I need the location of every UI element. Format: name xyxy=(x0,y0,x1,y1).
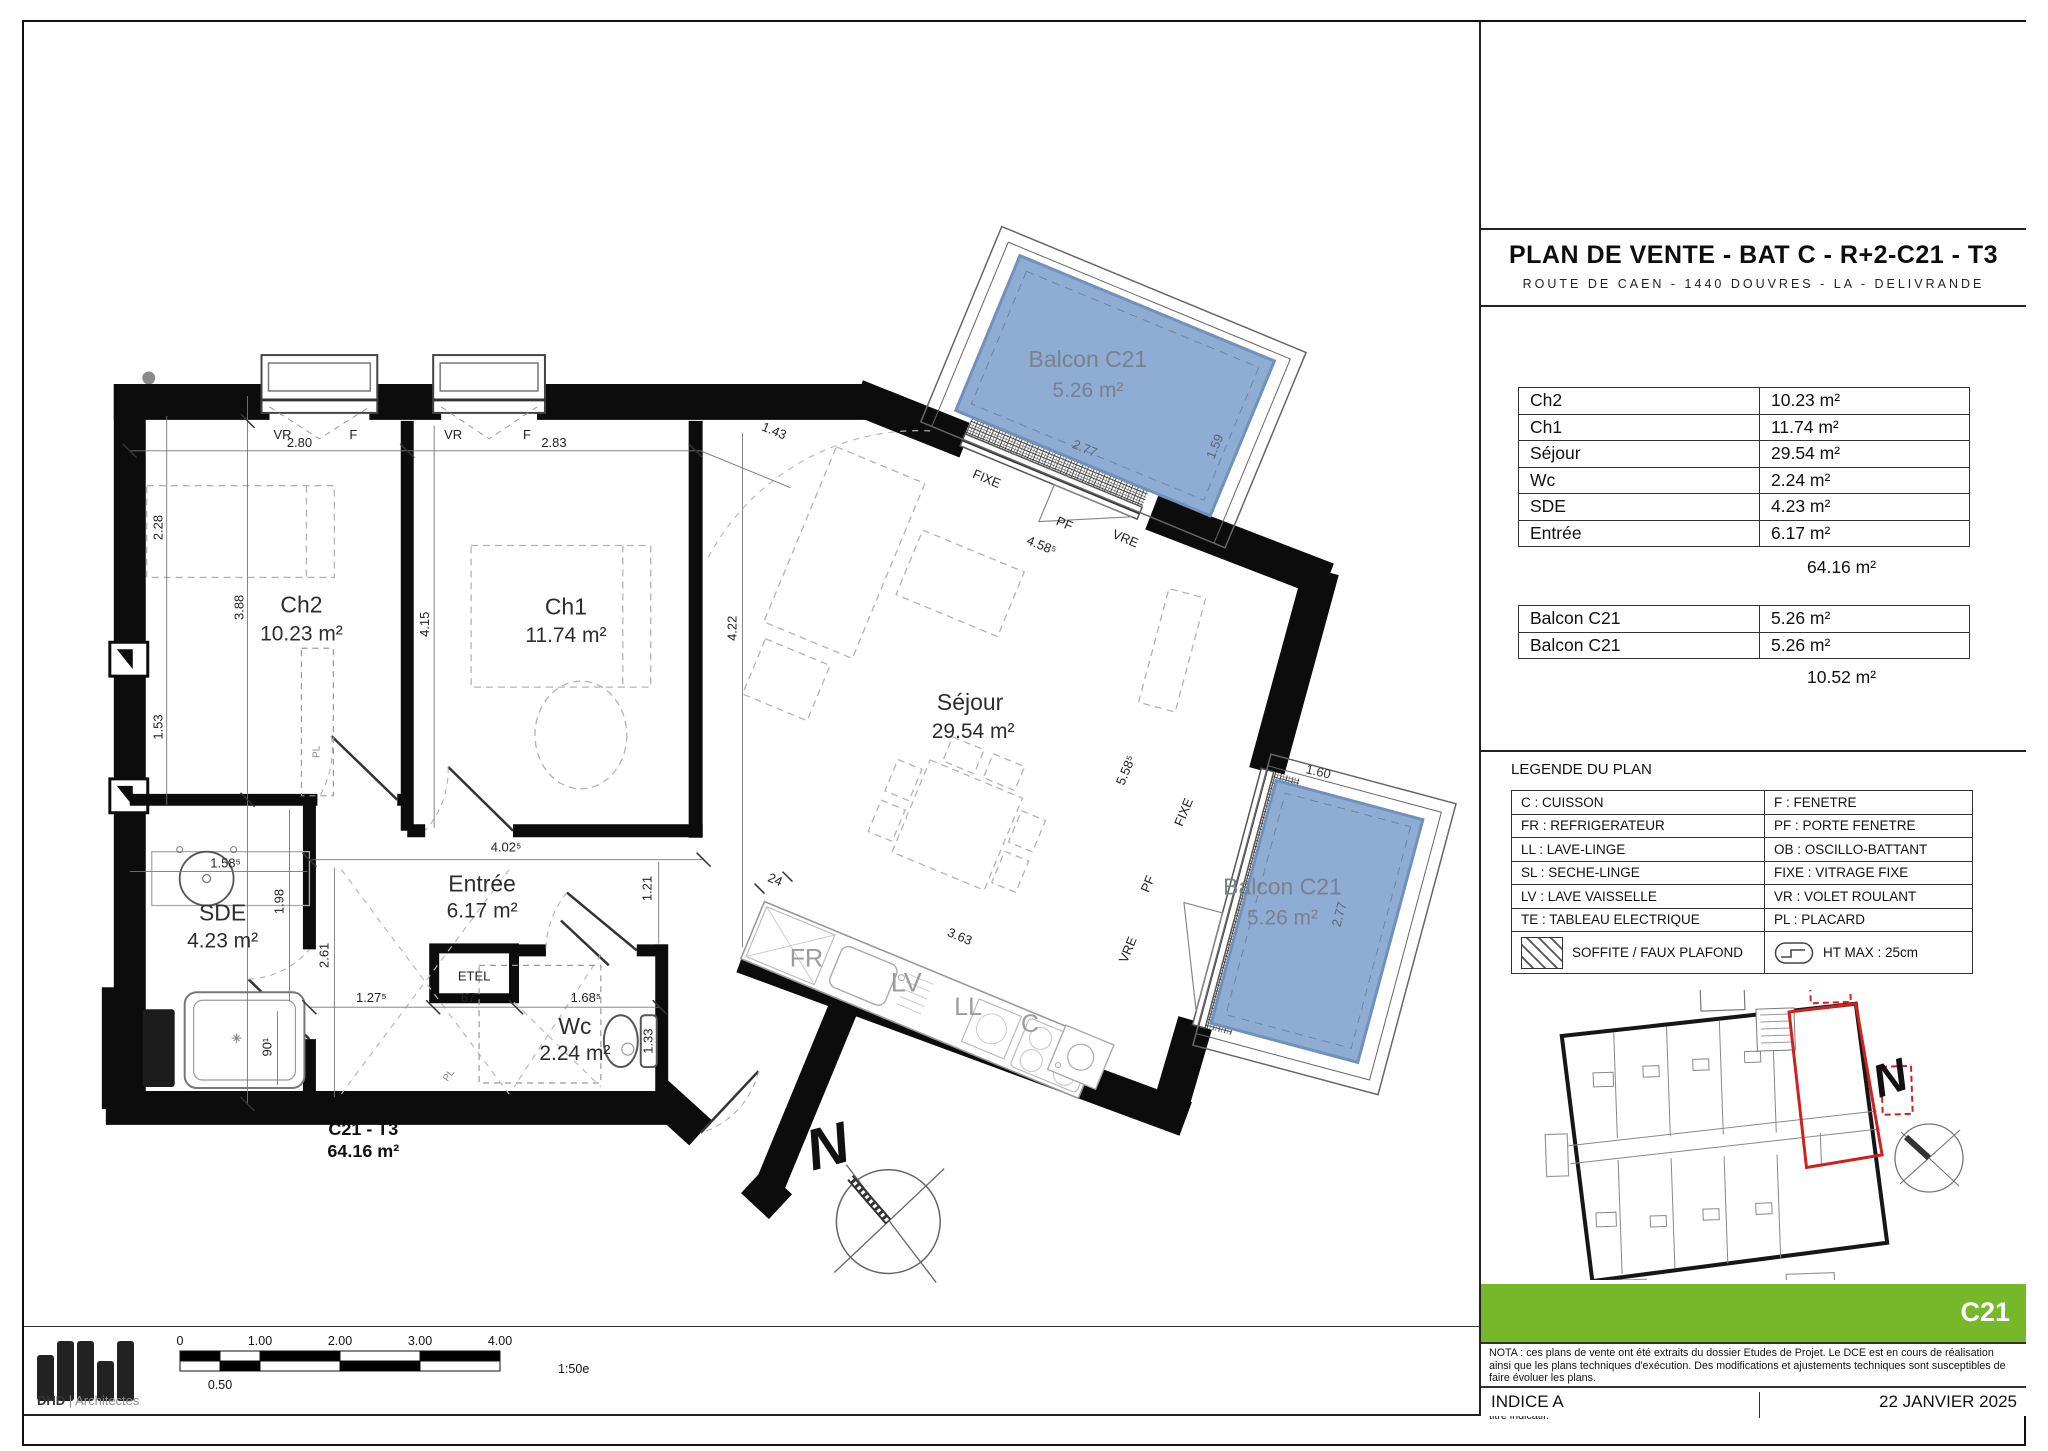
balcony-right-label: Balcon C21 xyxy=(1223,874,1342,900)
kitchen-ll-label: LL xyxy=(954,993,982,1021)
svg-text:VR: VR xyxy=(273,427,291,442)
unit-code: C21 xyxy=(1960,1297,2010,1328)
balcony-areas-table: Balcon C215.26 m² Balcon C215.26 m² xyxy=(1518,605,1970,659)
balcony-total-area: 10.52 m² xyxy=(1807,667,1876,688)
room-value: 2.24 m² xyxy=(1760,467,1970,494)
keyplan-north-compass: N xyxy=(1866,1048,1963,1192)
revision-date: 22 JANVIER 2025 xyxy=(1759,1392,2017,1418)
svg-text:3.63: 3.63 xyxy=(945,925,974,948)
svg-text:1.21: 1.21 xyxy=(640,876,655,901)
sheet-frame: 2.77 1.59 Balcon C21 5.26 m² Balcon C21 … xyxy=(22,20,2026,1446)
svg-text:1.58⁵: 1.58⁵ xyxy=(210,856,241,871)
nota-block: NOTA : ces plans de vente ont été extrai… xyxy=(1481,1342,2026,1386)
svg-text:5.58⁵: 5.58⁵ xyxy=(1113,753,1139,787)
room-label: Ch2 xyxy=(1519,388,1760,415)
legend-section: LEGENDE DU PLAN C : CUISSONF : FENETRE F… xyxy=(1481,750,2026,990)
legend-cell: LL : LAVE-LINGE xyxy=(1512,838,1765,862)
table-row: Ch111.74 m² xyxy=(1519,414,1970,441)
wall-bump xyxy=(102,987,132,1109)
svg-text:1.68⁵: 1.68⁵ xyxy=(571,990,602,1005)
building-key-plan: N xyxy=(1481,990,2026,1280)
svg-text:4.58⁵: 4.58⁵ xyxy=(1025,533,1059,559)
svg-text:2.28: 2.28 xyxy=(151,515,166,540)
pl-label-ch2: PL xyxy=(311,745,322,758)
title-block-panel: PLAN DE VENTE - BAT C - R+2-C21 - T3 ROU… xyxy=(1479,22,2026,1416)
areas-section: Ch210.23 m² Ch111.74 m² Séjour29.54 m² W… xyxy=(1481,307,2026,750)
scale-tick: 1.00 xyxy=(248,1334,272,1348)
room-label: Entrée xyxy=(1519,520,1760,547)
svg-text:VR: VR xyxy=(444,427,462,442)
balcony-label: Balcon C21 xyxy=(1519,632,1760,659)
svg-text:VRE: VRE xyxy=(1116,934,1140,965)
kitchen-c-label: C xyxy=(1021,1010,1039,1038)
legend-cell: PL : PLACARD xyxy=(1765,908,1973,932)
revision-index: INDICE A xyxy=(1491,1392,1564,1412)
room-ch1-name: Ch1 xyxy=(545,593,587,619)
room-ch2-area: 10.23 m² xyxy=(260,622,343,645)
total-area: 64.16 m² xyxy=(1807,557,1876,578)
table-row: Ch210.23 m² xyxy=(1519,388,1970,415)
room-sejour-area: 29.54 m² xyxy=(932,720,1015,743)
legend-cell: FIXE : VITRAGE FIXE xyxy=(1765,861,1973,885)
legend-cell: LV : LAVE VAISSELLE xyxy=(1512,885,1765,909)
htmax-icon xyxy=(1774,941,1814,965)
room-value: 6.17 m² xyxy=(1760,520,1970,547)
svg-text:3.88: 3.88 xyxy=(232,595,247,620)
svg-text:1.43: 1.43 xyxy=(760,419,789,442)
scale-tick: 4.00 xyxy=(488,1334,512,1348)
unit-name-label: C21 - T3 xyxy=(328,1119,398,1139)
room-sde-area: 4.23 m² xyxy=(187,929,258,952)
room-label: Ch1 xyxy=(1519,414,1760,441)
scale-tick: 2.00 xyxy=(328,1334,352,1348)
svg-text:FIXE: FIXE xyxy=(971,466,1004,491)
room-ch1-area: 11.74 m² xyxy=(525,624,606,647)
room-entree-area: 6.17 m² xyxy=(447,899,518,922)
svg-text:PF: PF xyxy=(1137,873,1157,894)
keyplan-section: N xyxy=(1481,990,2026,1284)
legend-cell: OB : OSCILLO-BATTANT xyxy=(1765,838,1973,862)
svg-text:1.53: 1.53 xyxy=(151,714,166,739)
balcony-top-label: Balcon C21 xyxy=(1029,346,1148,372)
revision-row: INDICE A 22 JANVIER 2025 xyxy=(1481,1386,2026,1416)
legend-cell: FR : REFRIGERATEUR xyxy=(1512,814,1765,838)
scale-bar: 0 1.00 2.00 3.00 4.00 0.50 1:50e xyxy=(170,1333,590,1403)
svg-text:2.83: 2.83 xyxy=(541,435,566,450)
logo-divider: | xyxy=(69,1393,72,1408)
balcony-right-area: 5.26 m² xyxy=(1247,906,1318,929)
legend-cell: VR : VOLET ROULANT xyxy=(1765,885,1973,909)
soffite-hatch-icon xyxy=(1521,937,1563,969)
bottom-strip: DHD | Architectes 0 1.00 2.00 3.00 4.00 … xyxy=(24,1326,1479,1416)
placards xyxy=(301,648,600,1083)
room-areas-table: Ch210.23 m² Ch111.74 m² Séjour29.54 m² W… xyxy=(1518,387,1970,547)
legend-cell: C : CUISSON xyxy=(1512,791,1765,815)
room-value: 10.23 m² xyxy=(1760,388,1970,415)
svg-text:1.27⁵: 1.27⁵ xyxy=(356,990,387,1005)
soffite-label: SOFFITE / FAUX PLAFOND xyxy=(1572,945,1743,960)
room-sde-name: SDE xyxy=(199,899,246,925)
svg-text:24: 24 xyxy=(766,870,785,889)
table-row: Balcon C215.26 m² xyxy=(1519,632,1970,659)
table-row: SDE4.23 m² xyxy=(1519,494,1970,521)
svg-text:FIXE: FIXE xyxy=(1171,796,1196,829)
unit-code-banner: C21 xyxy=(1481,1284,2026,1342)
room-value: 4.23 m² xyxy=(1760,494,1970,521)
table-row: Balcon C215.26 m² xyxy=(1519,606,1970,633)
table-row: Wc2.24 m² xyxy=(1519,467,1970,494)
kitchen-lv-label: LV xyxy=(891,967,922,997)
room-value: 29.54 m² xyxy=(1760,441,1970,468)
room-sejour-name: Séjour xyxy=(937,689,1004,715)
svg-text:4.22: 4.22 xyxy=(725,616,740,641)
balcony-label: Balcon C21 xyxy=(1519,606,1760,633)
legend-table: C : CUISSONF : FENETRE FR : REFRIGERATEU… xyxy=(1511,790,1973,974)
title-block: PLAN DE VENTE - BAT C - R+2-C21 - T3 ROU… xyxy=(1481,228,2026,307)
svg-text:VRE: VRE xyxy=(1110,526,1141,550)
legend-cell: F : FENETRE xyxy=(1765,791,1973,815)
dim-balcony-right-depth: 1.60 xyxy=(1304,761,1332,781)
legend-cell: SL : SECHE-LINGE xyxy=(1512,861,1765,885)
svg-text:2.61: 2.61 xyxy=(316,943,331,968)
scale-ratio: 1:50e xyxy=(558,1362,589,1376)
room-ch2-name: Ch2 xyxy=(280,591,322,617)
room-value: 11.74 m² xyxy=(1760,414,1970,441)
scale-tick: 3.00 xyxy=(408,1334,432,1348)
plan-de-vente-sheet: 2.77 1.59 Balcon C21 5.26 m² Balcon C21 … xyxy=(0,0,2048,1451)
legend-cell: PF : PORTE FENETRE xyxy=(1765,814,1973,838)
legend-cell: TE : TABLEAU ELECTRIQUE xyxy=(1512,908,1765,932)
svg-text:90¹: 90¹ xyxy=(260,1037,275,1056)
room-label: SDE xyxy=(1519,494,1760,521)
room-wc-area: 2.24 m² xyxy=(539,1042,610,1065)
htmax-label: HT MAX : 25cm xyxy=(1823,945,1918,960)
logo-name: DHD xyxy=(37,1393,65,1408)
room-label: Wc xyxy=(1519,467,1760,494)
svg-text:4.15: 4.15 xyxy=(417,612,432,637)
kitchen-fr-label: FR xyxy=(790,944,823,972)
balcony-value: 5.26 m² xyxy=(1760,632,1970,659)
scale-tick: 0 xyxy=(177,1334,184,1348)
svg-text:1.98: 1.98 xyxy=(271,889,286,914)
sheet-address: ROUTE DE CAEN - 1440 DOUVRES - LA - DELI… xyxy=(1481,277,2026,291)
survey-dot xyxy=(142,372,155,385)
room-label: Séjour xyxy=(1519,441,1760,468)
north-letter: N xyxy=(799,1110,857,1183)
svg-text:PF: PF xyxy=(1054,513,1075,533)
room-entree-name: Entrée xyxy=(448,871,516,897)
balcony-value: 5.26 m² xyxy=(1760,606,1970,633)
table-row: Entrée6.17 m² xyxy=(1519,520,1970,547)
unit-area-label: 64.16 m² xyxy=(327,1141,399,1161)
svg-text:4.02⁵: 4.02⁵ xyxy=(491,840,522,855)
north-compass: N xyxy=(799,1110,944,1282)
sde-fixtures xyxy=(143,847,310,1088)
table-row: Séjour29.54 m² xyxy=(1519,441,1970,468)
sheet-title: PLAN DE VENTE - BAT C - R+2-C21 - T3 xyxy=(1481,241,2026,270)
scale-half-tick: 0.50 xyxy=(208,1378,232,1392)
svg-text:67: 67 xyxy=(461,990,475,1005)
legend-heading: LEGENDE DU PLAN xyxy=(1511,761,1652,778)
svg-text:F: F xyxy=(523,427,531,442)
logo-type: Architectes xyxy=(75,1393,139,1408)
svg-text:F: F xyxy=(349,427,357,442)
svg-text:1.33: 1.33 xyxy=(641,1029,656,1054)
balcony-top-area: 5.26 m² xyxy=(1052,379,1123,402)
pl-label-wc: PL xyxy=(441,1067,457,1084)
svg-text:ETEL: ETEL xyxy=(458,968,490,983)
nota-paragraph: NOTA : ces plans de vente ont été extrai… xyxy=(1489,1347,2018,1385)
room-wc-name: Wc xyxy=(558,1013,591,1039)
